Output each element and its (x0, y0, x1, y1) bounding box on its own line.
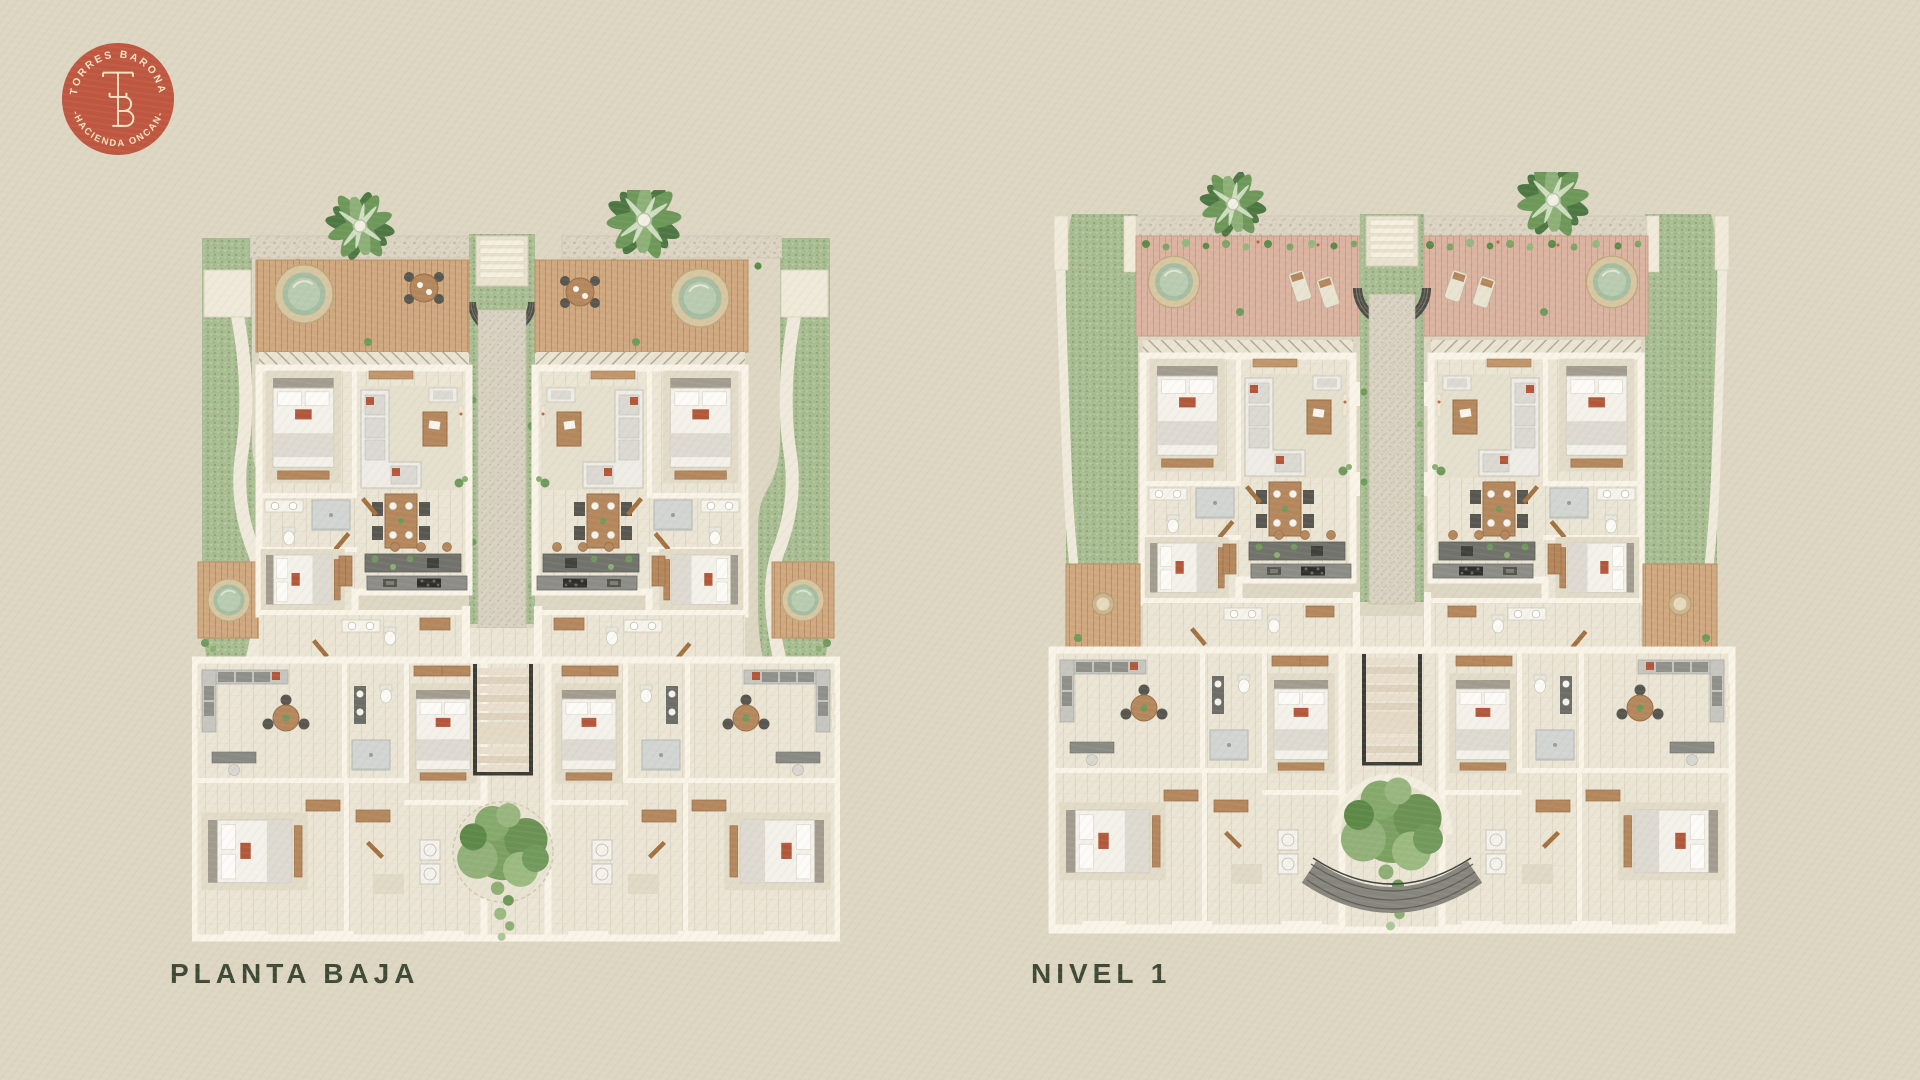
apartment-unit-left (1143, 340, 1353, 602)
hot-tub-icon (1586, 256, 1637, 307)
lower-wing (194, 660, 838, 941)
torres-barona-logo: TORRES BARONA -HACIENDA ONCAN- (59, 40, 177, 158)
rattan-chair-icon (1669, 593, 1691, 615)
lower-wing (1052, 650, 1732, 931)
hot-tub-icon (1148, 256, 1199, 307)
floorplan-nivel-1 (1028, 172, 1755, 942)
apartment-unit-left (259, 352, 469, 614)
central-staircase (1362, 654, 1422, 766)
patio-table-icon (560, 276, 600, 308)
apartment-unit-right (1431, 340, 1641, 602)
central-garden-axis (462, 234, 542, 628)
patio-table-icon (404, 272, 444, 304)
rattan-chair-icon (1092, 593, 1114, 615)
hot-tub-icon (275, 265, 333, 323)
plan-label-planta-baja: PLANTA BAJA (170, 958, 419, 990)
central-staircase (473, 664, 533, 776)
floorplan-planta-baja (192, 190, 840, 950)
brochure-page: { "page": { "background_color": "#ddd6c2… (0, 0, 1920, 1080)
apartment-unit-right (535, 352, 745, 614)
central-garden-axis (1353, 214, 1431, 604)
hot-tub-icon (671, 269, 729, 327)
plan-label-nivel-1: NIVEL 1 (1031, 958, 1171, 990)
